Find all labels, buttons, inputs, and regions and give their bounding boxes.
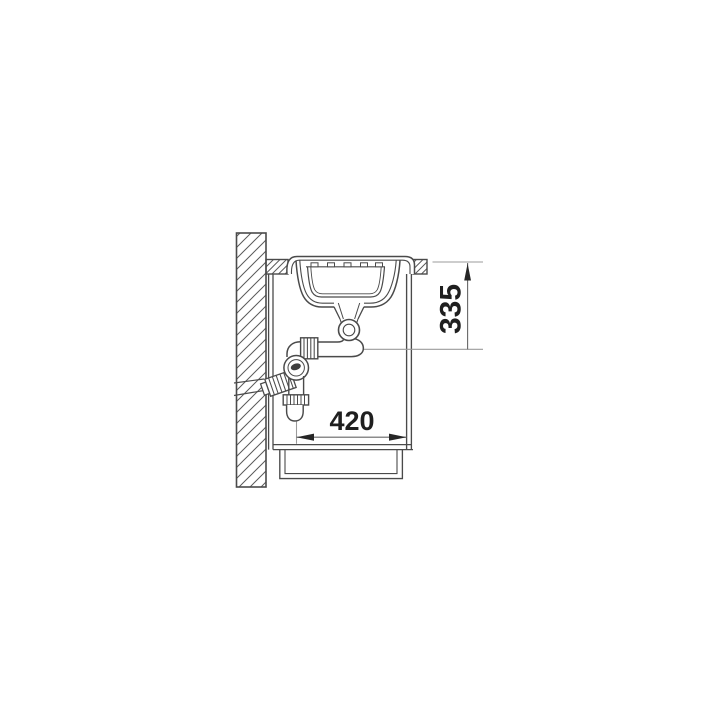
sink-basin: [287, 257, 415, 308]
sink-installation-drawing-page: 335 420: [0, 0, 720, 720]
ribbed-coupling-nut: [301, 338, 318, 359]
drain-coupling-ring: [339, 320, 360, 341]
sink-installation-diagram: 335 420: [0, 0, 720, 720]
wall-cross-section: [237, 233, 267, 487]
left-elbow-outer: [287, 342, 301, 357]
trap-cup: [287, 405, 304, 421]
cabinet-back-panel: [269, 275, 273, 450]
dimension-arrow-left-icon: [297, 434, 315, 441]
width-dimension-label: 420: [329, 406, 374, 436]
plinth-panel: [280, 450, 403, 479]
width-dimension: 420: [297, 406, 407, 444]
drain-assembly: [334, 302, 364, 341]
cabinet-side-panel: [407, 263, 412, 450]
plinth-panel-inner: [285, 450, 397, 474]
elbow-top-line: [318, 340, 344, 342]
cabinet-bottom-shelf: [273, 445, 413, 450]
height-dimension-label: 335: [435, 284, 468, 334]
dimension-arrow-up-icon: [464, 264, 471, 281]
worktop-left-section: [266, 260, 288, 275]
dimension-arrow-right-icon: [389, 434, 407, 441]
